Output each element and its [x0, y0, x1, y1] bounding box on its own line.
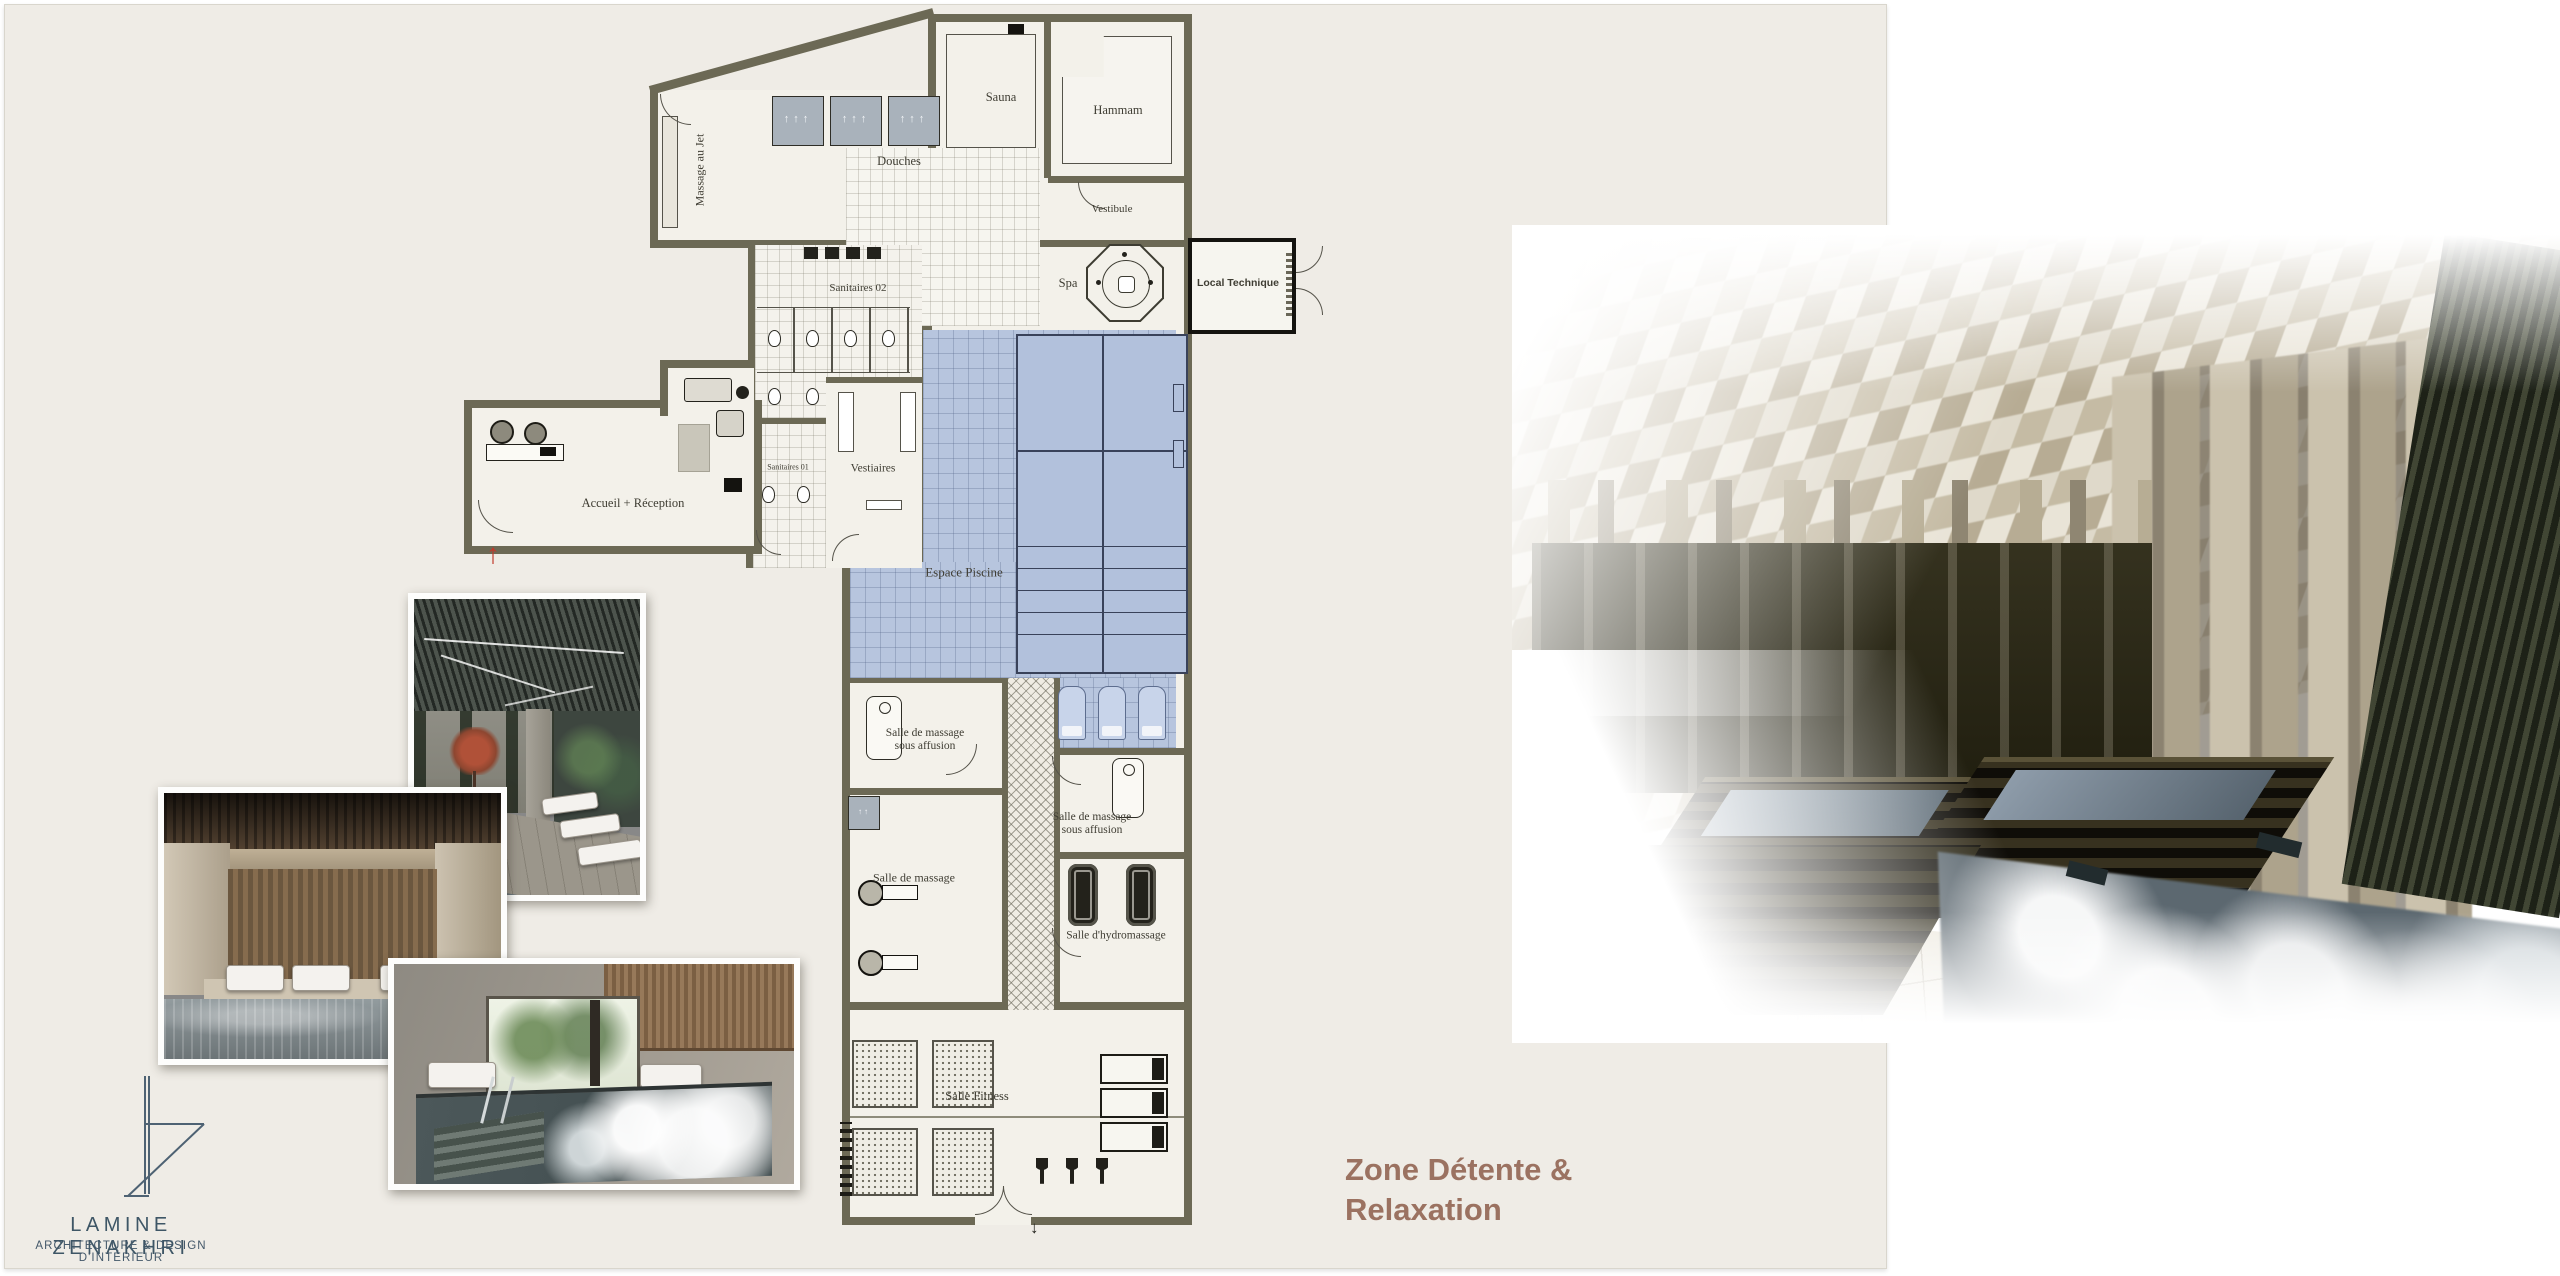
locker-bank	[838, 392, 854, 452]
exit-arrow-icon: ↓	[1030, 1218, 1039, 1238]
wc-icon	[797, 486, 810, 503]
wall-segment	[1048, 748, 1184, 755]
slide-title-line1: Zone Détente &	[1345, 1150, 1572, 1190]
pool-steps	[1018, 634, 1186, 635]
room-label-massage-au-jet: Massage au Jet	[693, 134, 708, 207]
photo-recess	[220, 849, 445, 871]
wc-icon	[882, 330, 895, 347]
hydromassage-tub	[1068, 864, 1098, 926]
shower-stall: ↑↑	[848, 796, 880, 830]
room-label-local-technique: Local Technique	[1192, 278, 1284, 290]
pool-basin	[1016, 334, 1188, 674]
hydromassage-tub	[1126, 864, 1156, 926]
slide-title: Zone Détente & Relaxation	[1345, 1150, 1572, 1230]
locker-bank	[900, 392, 916, 452]
room-label-sauna: Sauna	[986, 90, 1017, 104]
room-label-spa: Spa	[1059, 276, 1078, 290]
wc-icon	[762, 486, 775, 503]
fitness-mat	[852, 1040, 918, 1108]
door-arc	[1296, 288, 1323, 315]
render-fade	[1512, 225, 2560, 716]
massage-table	[1112, 758, 1144, 818]
room-label-salle-de-massage: Salle de massage	[873, 871, 955, 884]
room-label-massage-affusion-2: Salle de massage sous affusion	[1048, 811, 1136, 837]
wall-segment	[649, 8, 935, 95]
room-label-salle-fitness: Salle Fitness	[945, 1089, 1009, 1103]
wc-icon	[768, 330, 781, 347]
massage-chair	[858, 950, 884, 976]
room-label-vestibule: Vestibule	[1092, 203, 1133, 215]
photo-door	[590, 1000, 600, 1086]
room-label-massage-affusion-1: Salle de massage sous affusion	[881, 727, 969, 753]
pool-ladder	[1173, 384, 1184, 412]
logo-mark-icon	[98, 1072, 218, 1202]
pool-steps	[1018, 546, 1186, 547]
exercise-bike	[1066, 1158, 1078, 1184]
pool-lounger	[226, 965, 284, 991]
pool-ladder	[1173, 440, 1184, 468]
exercise-bike	[1036, 1158, 1048, 1184]
fitness-mat	[852, 1128, 918, 1196]
room-label-hydromassage: Salle d'hydromassage	[1066, 930, 1165, 943]
room-label-accueil: Accueil + Réception	[580, 496, 686, 510]
wc-icon	[768, 388, 781, 405]
bench	[866, 500, 902, 510]
photo-wood-ceiling	[164, 793, 501, 849]
wall-segment	[1044, 20, 1051, 178]
relax-lounger	[1098, 686, 1126, 740]
photo-window	[486, 996, 640, 1094]
massage-chair-rest	[882, 885, 918, 900]
fitness-door-gap	[975, 1217, 1031, 1225]
relax-lounger	[1138, 686, 1166, 740]
massage-chair-rest	[882, 955, 918, 970]
pool-steps	[1018, 568, 1186, 569]
room-label-hammam: Hammam	[1093, 103, 1142, 117]
exercise-bike	[1096, 1158, 1108, 1184]
logo-tagline: ARCHITECTURE & DESIGN D'INTÉRIEUR	[0, 1240, 242, 1264]
pool-lane-line	[1018, 450, 1186, 452]
entrance-arrow-icon: ↑	[486, 538, 500, 570]
slide-title-line2: Relaxation	[1345, 1190, 1572, 1230]
sink-row	[804, 247, 886, 259]
room-label-sanitaires-02: Sanitaires 02	[829, 282, 886, 294]
door-arc	[1296, 246, 1323, 273]
rug	[678, 424, 710, 472]
wall-segment	[1048, 176, 1188, 183]
sauna-stove	[1008, 24, 1024, 34]
massage-jet-bench	[662, 116, 678, 228]
photo-red-tree	[448, 727, 502, 775]
room-label-vestiaires: Vestiaires	[851, 463, 896, 476]
wc-icon	[806, 330, 819, 347]
barbell-rack	[840, 1122, 852, 1196]
render-spa-interior	[1512, 225, 2560, 1043]
plant-icon	[736, 386, 749, 399]
wall-segment	[1048, 852, 1184, 859]
treadmill	[1100, 1088, 1168, 1118]
pool-lane-line	[1102, 336, 1104, 672]
sofa	[684, 378, 732, 402]
inset-photo-jacuzzi	[388, 958, 800, 1190]
treadmill	[1100, 1054, 1168, 1084]
wall-segment	[846, 788, 1006, 795]
shower-stall: ↑↑↑	[888, 96, 940, 146]
treadmill	[1100, 1122, 1168, 1152]
shower-stall: ↑↑↑	[772, 96, 824, 146]
pool-lounger	[292, 965, 350, 991]
pool-steps	[1018, 612, 1186, 613]
wc-icon	[806, 388, 819, 405]
relax-lounger	[1058, 686, 1086, 740]
hatch-strip	[1286, 250, 1292, 316]
room-label-espace-piscine: Espace Piscine	[925, 566, 1003, 581]
photo-pillar	[164, 843, 230, 995]
pool-steps	[1018, 590, 1186, 591]
reception-chair	[490, 420, 514, 444]
room-label-sanitaires-01: Sanitaires 01	[767, 464, 809, 473]
laptop	[540, 447, 556, 456]
corridor-herringbone	[1002, 678, 1060, 1010]
reception-chair	[524, 422, 547, 445]
render-fade	[1512, 912, 2560, 1043]
wc-icon	[844, 330, 857, 347]
armchair	[716, 410, 744, 437]
tv-cabinet	[724, 478, 742, 492]
room-label-douches: Douches	[877, 154, 921, 168]
shower-stall: ↑↑↑	[830, 96, 882, 146]
spa-lounger	[428, 1062, 496, 1088]
